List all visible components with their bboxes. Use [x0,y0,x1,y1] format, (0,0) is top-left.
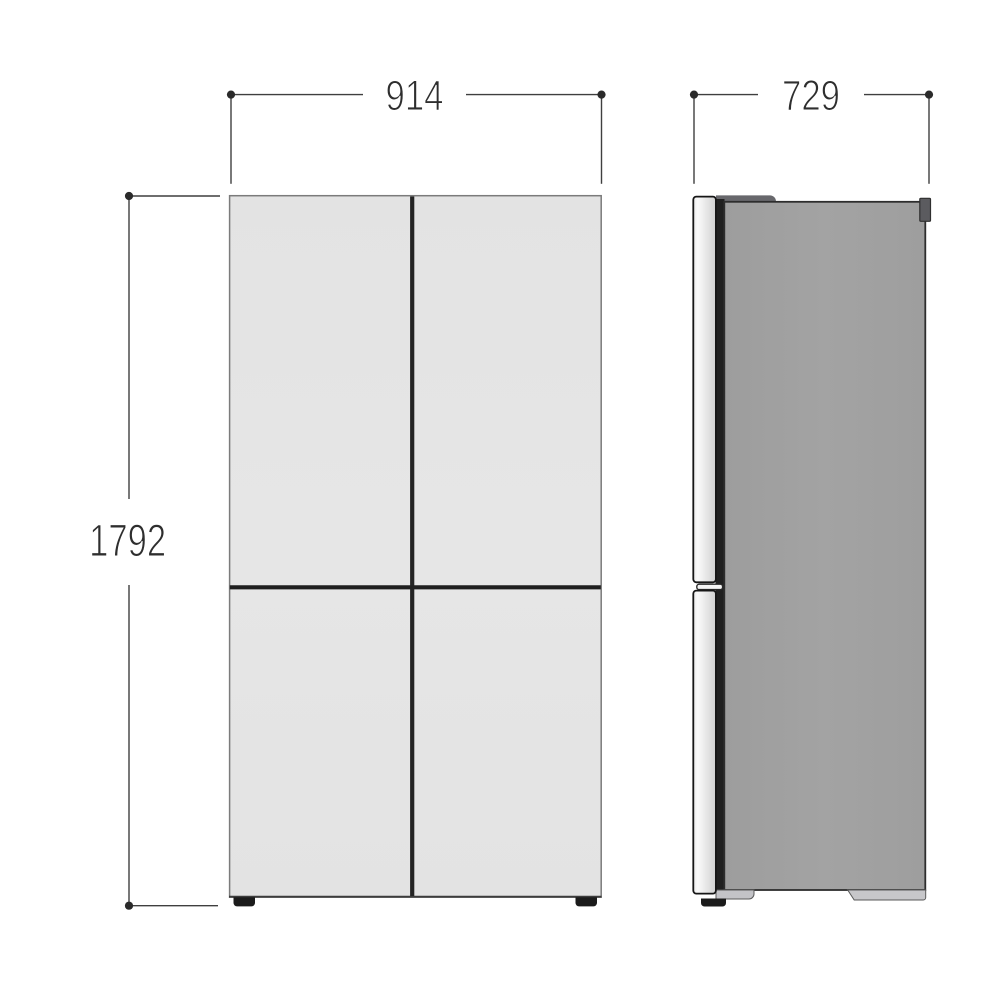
svg-text:729: 729 [782,73,840,120]
svg-text:914: 914 [386,73,444,120]
svg-text:1792: 1792 [89,515,166,566]
